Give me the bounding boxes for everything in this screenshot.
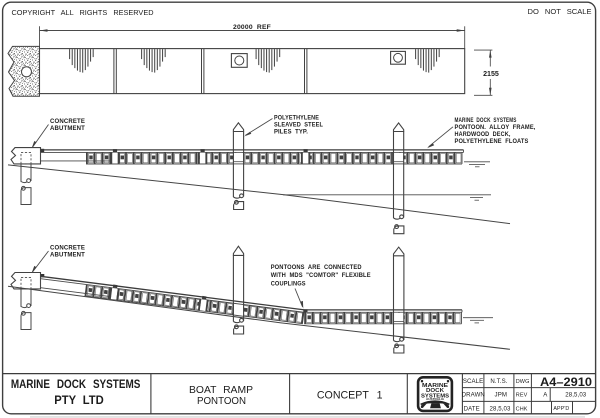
svg-text:MARINE DOCK SYSTEMS: MARINE DOCK SYSTEMS xyxy=(455,117,517,124)
svg-text:CONCRETE: CONCRETE xyxy=(50,244,85,251)
svg-text:PTY LTD: PTY LTD xyxy=(54,393,104,407)
svg-text:PONTOONS ARE CONNECTED: PONTOONS ARE CONNECTED xyxy=(271,264,362,271)
svg-text:PILES TYP.: PILES TYP. xyxy=(274,128,308,135)
svg-text:JPM: JPM xyxy=(495,392,508,399)
svg-text:2155: 2155 xyxy=(483,69,499,78)
svg-text:COPYRIGHT ALL RIGHTS RESERVED: COPYRIGHT ALL RIGHTS RESERVED xyxy=(12,8,154,17)
svg-text:28,5,03: 28,5,03 xyxy=(489,405,511,412)
svg-text:20000 REF: 20000 REF xyxy=(233,24,271,31)
svg-text:APP'D: APP'D xyxy=(553,406,569,412)
svg-text:ABUTMENT: ABUTMENT xyxy=(50,125,85,132)
svg-text:DRAWN: DRAWN xyxy=(462,392,485,399)
svg-text:MARINE DOCK SYSTEMS: MARINE DOCK SYSTEMS xyxy=(11,377,141,391)
svg-text:28,5,03: 28,5,03 xyxy=(565,392,587,399)
svg-text:DWG: DWG xyxy=(516,379,530,385)
svg-text:REV: REV xyxy=(516,393,528,399)
svg-text:CONCEPT 1: CONCEPT 1 xyxy=(317,390,383,402)
svg-text:CHK: CHK xyxy=(516,407,528,413)
svg-text:CONCRETE: CONCRETE xyxy=(50,118,85,125)
svg-text:WITH MDS "COMTOR" FLEXIBLE: WITH MDS "COMTOR" FLEXIBLE xyxy=(271,272,371,279)
svg-text:N.T.S.: N.T.S. xyxy=(490,378,507,385)
svg-text:PONTOON: PONTOON xyxy=(197,396,246,407)
svg-text:SCALE: SCALE xyxy=(463,378,483,385)
svg-text:BOAT RAMP: BOAT RAMP xyxy=(189,385,253,396)
svg-text:DATE: DATE xyxy=(464,405,480,412)
svg-text:POLYETHYLENE FLOATS: POLYETHYLENE FLOATS xyxy=(455,138,529,145)
svg-text:A4–2910: A4–2910 xyxy=(540,377,592,389)
svg-text:DO NOT SCALE: DO NOT SCALE xyxy=(528,7,592,16)
svg-text:HARDWOOD DECK,: HARDWOOD DECK, xyxy=(455,131,511,138)
svg-text:ABUTMENT: ABUTMENT xyxy=(50,251,85,258)
svg-text:POLYETHYLENE: POLYETHYLENE xyxy=(274,114,319,121)
svg-text:COUPLINGS: COUPLINGS xyxy=(271,280,306,287)
svg-text:PONTOON. ALLOY FRAME,: PONTOON. ALLOY FRAME, xyxy=(455,124,536,131)
svg-text:SLEAVED STEEL: SLEAVED STEEL xyxy=(274,121,323,128)
